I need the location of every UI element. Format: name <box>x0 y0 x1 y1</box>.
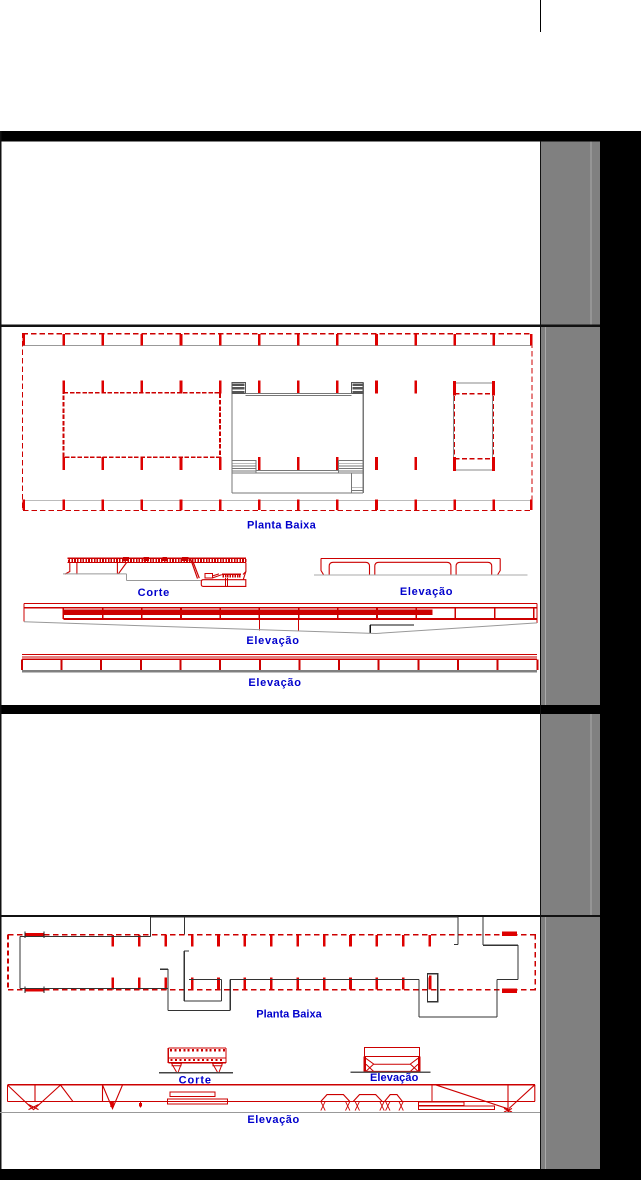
svg-text:Planta Baixa: Planta Baixa <box>256 1008 322 1020</box>
svg-text:Elevação: Elevação <box>247 1114 300 1126</box>
svg-text:Elevação: Elevação <box>370 1072 419 1084</box>
svg-text:Corte: Corte <box>138 587 170 599</box>
svg-text:Elevação: Elevação <box>248 677 301 689</box>
svg-text:Elevação: Elevação <box>246 635 299 647</box>
svg-text:Elevação: Elevação <box>400 586 453 598</box>
svg-text:Planta Baixa: Planta Baixa <box>247 520 317 532</box>
